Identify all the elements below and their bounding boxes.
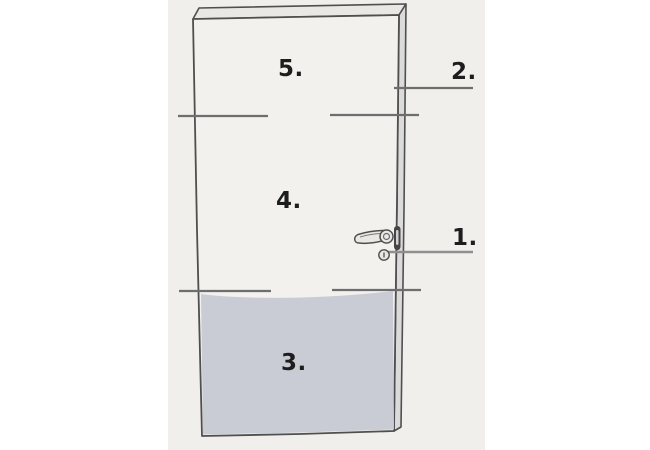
door-edge-plate-highlight [396, 230, 399, 245]
screenshot-root: 5. 2. 4. 1. 3. [0, 0, 650, 450]
door-handle-rosette [380, 230, 393, 243]
label-section-5: 5. [278, 58, 304, 81]
door-diagram [0, 0, 650, 450]
label-callout-1: 1. [452, 227, 478, 250]
label-section-4: 4. [276, 190, 302, 213]
label-callout-2: 2. [451, 61, 477, 84]
label-section-3: 3. [281, 352, 307, 375]
